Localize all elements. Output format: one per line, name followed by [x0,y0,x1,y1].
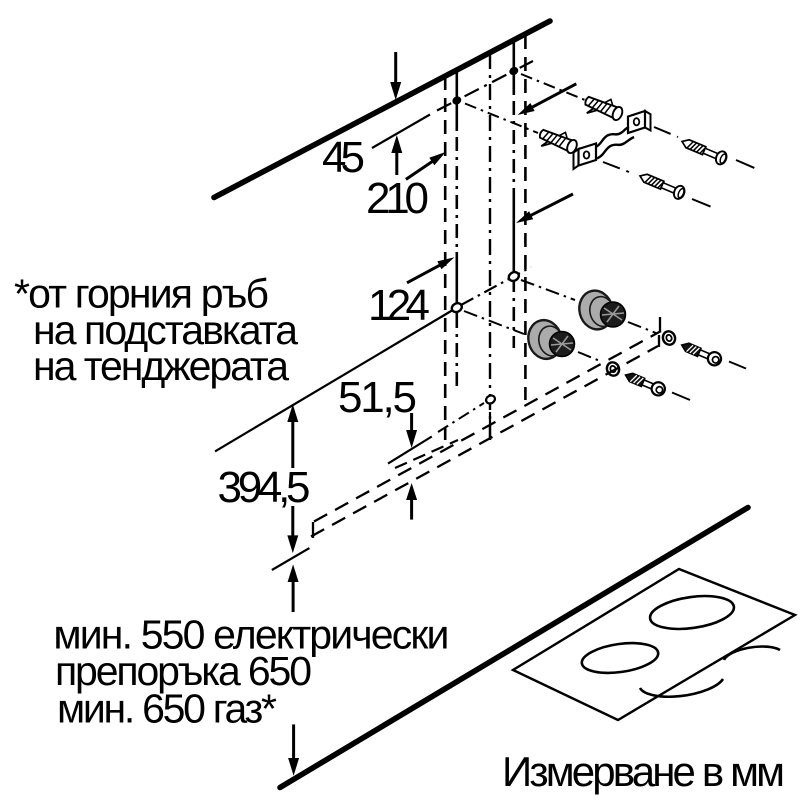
svg-text:51,5: 51,5 [338,373,417,422]
svg-text:Измерване в мм: Измерване в мм [502,748,785,795]
svg-text:210: 210 [366,174,429,223]
svg-text:124: 124 [368,281,430,330]
svg-text:на тенджерата: на тенджерата [33,343,289,389]
svg-text:45: 45 [322,133,365,182]
svg-text:мин. 650 газ*: мин. 650 газ* [57,686,277,732]
svg-text:394,5: 394,5 [218,463,311,512]
